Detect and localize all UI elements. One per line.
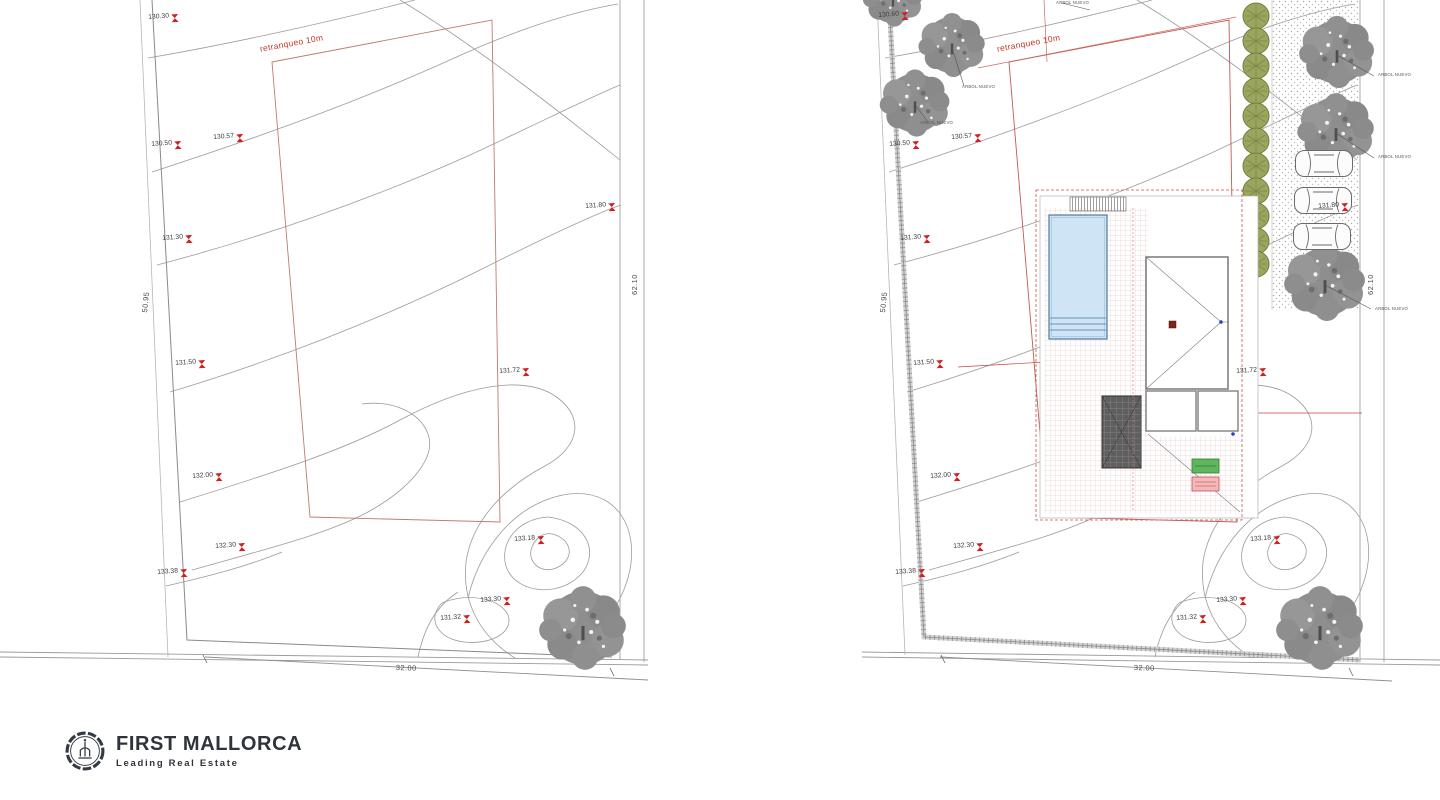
tree-icon: [539, 586, 626, 670]
main-room: [1146, 257, 1228, 389]
room: [1198, 391, 1238, 431]
first-mallorca-logo: FIRST MALLORCA Leading Real Estate: [64, 730, 302, 772]
pool: [1049, 215, 1107, 339]
contour-lines-left: [148, 0, 632, 658]
plan-marker: [1169, 321, 1176, 328]
room: [1146, 391, 1196, 431]
logo-brand: FIRST MALLORCA: [116, 733, 302, 756]
tree-icon: [863, 0, 923, 27]
logo-tagline: Leading Real Estate: [116, 758, 302, 769]
pool-deck: [1070, 197, 1126, 211]
tree-icon: [880, 69, 950, 136]
tree-icon: [918, 13, 984, 77]
pink-panel: [1192, 477, 1219, 491]
car-icon: [1294, 224, 1351, 250]
site-plan-drawing: [0, 0, 1440, 800]
first-mallorca-logo-icon: [64, 730, 106, 772]
car-icon: [1295, 188, 1352, 214]
house-plan: [1036, 190, 1258, 520]
setback-rect-left: [272, 20, 500, 522]
parked-cars: [1294, 151, 1353, 250]
car-icon: [1296, 151, 1353, 177]
site-plan-sheet: retranqueo 10mretranqueo 10m 50.9562.103…: [0, 0, 1440, 800]
